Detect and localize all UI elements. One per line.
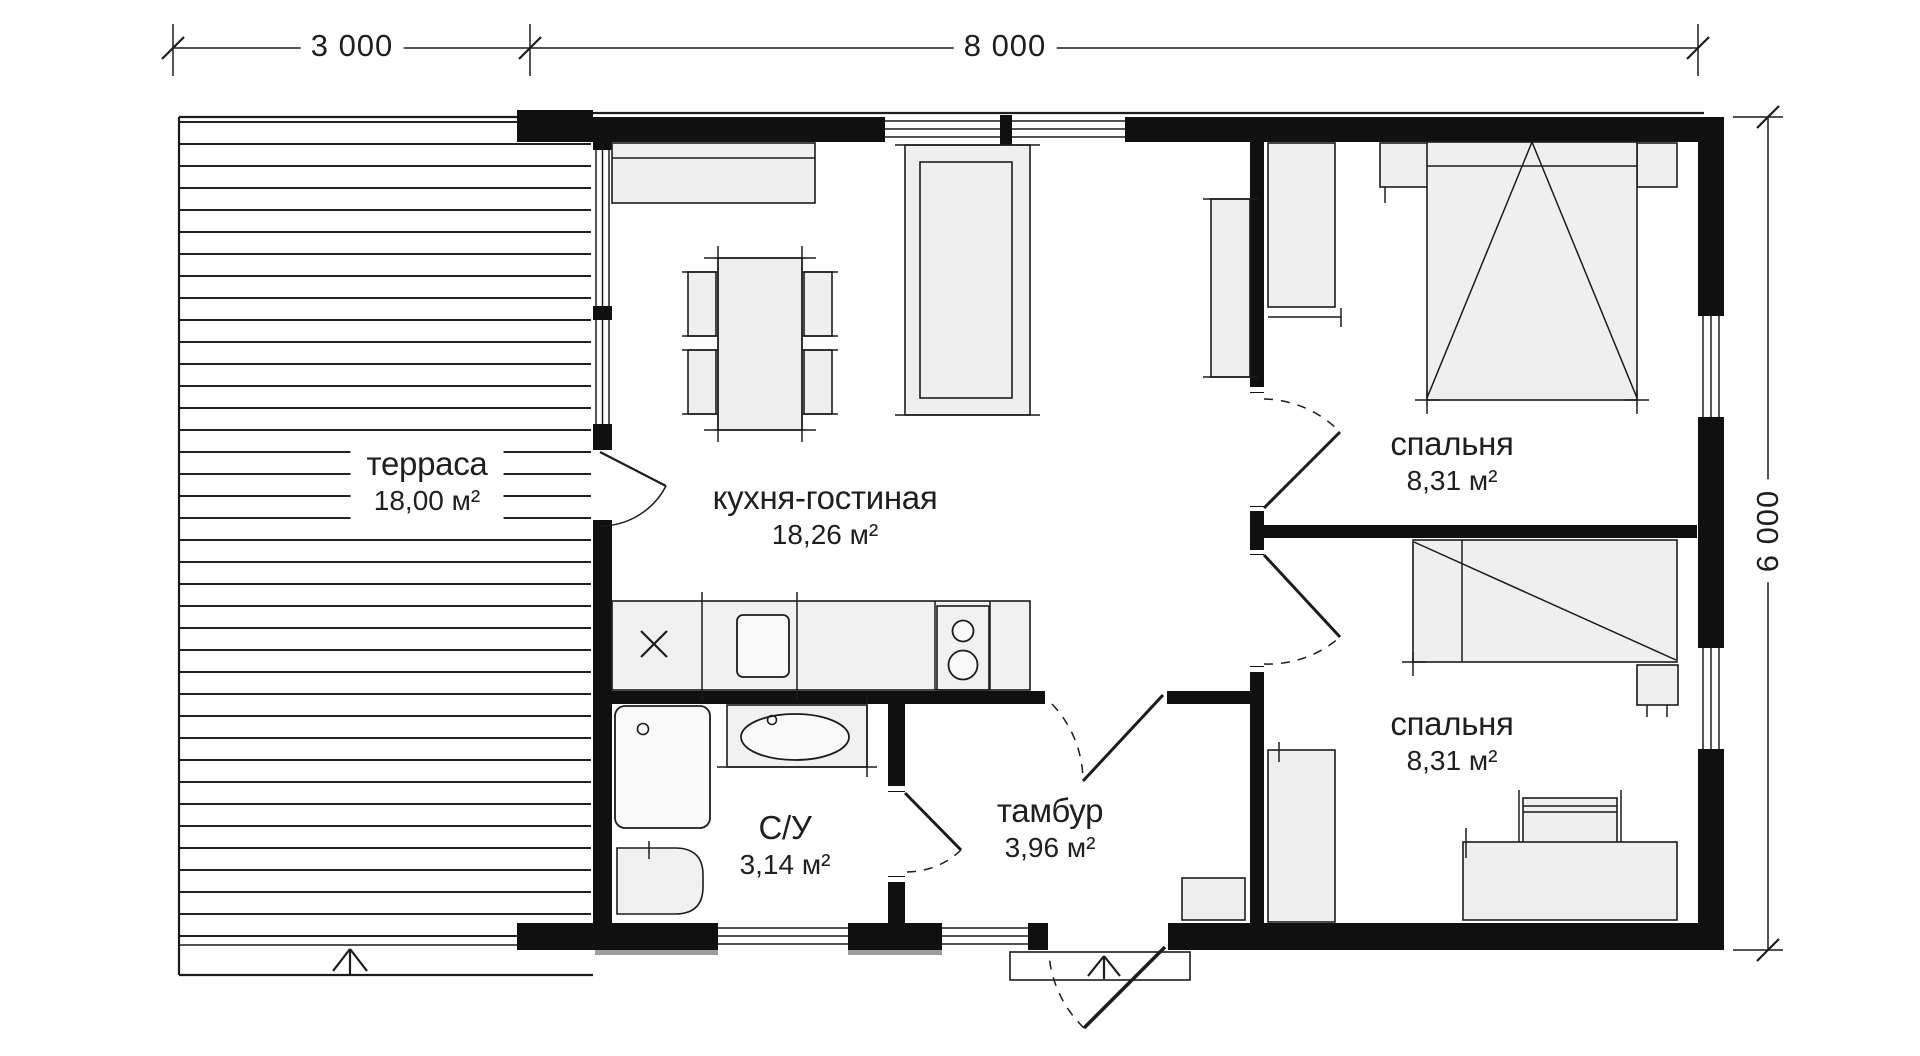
room-label-kitchen-living: кухня-гостиная 18,26 м² — [713, 481, 938, 549]
terrace-outline — [179, 117, 593, 975]
bedroom-top-furniture — [1268, 142, 1677, 414]
floor-plan: 3 000 8 000 6 000 терраса 18,00 м² кухня… — [0, 0, 1920, 1056]
washbasin-icon — [717, 696, 877, 777]
kitchen-vestibule-door-icon — [1052, 695, 1163, 781]
dining-table-icon — [682, 246, 838, 442]
dimension-right: 6 000 — [1748, 480, 1788, 583]
bathroom-fixtures — [615, 696, 877, 914]
desk-icon — [1463, 828, 1677, 920]
wardrobe-icon — [1268, 742, 1335, 922]
room-area: 8,31 м² — [1407, 747, 1498, 775]
room-label-vestibule: тамбур 3,96 м² — [997, 794, 1103, 862]
room-name: тамбур — [997, 794, 1103, 827]
nightstand-icon — [1637, 665, 1678, 717]
bedroom-top-door-icon — [1264, 399, 1340, 508]
room-area: 3,96 м² — [1005, 834, 1096, 862]
room-label-bedroom-top: спальня 8,31 м² — [1390, 427, 1513, 495]
room-area: 3,14 м² — [740, 851, 831, 879]
terrace-entry-arrow-icon — [333, 949, 367, 974]
room-name: спальня — [1390, 707, 1513, 740]
wall-shelf-icon — [1203, 199, 1258, 377]
kitchen-sink-icon — [737, 615, 789, 677]
room-name: С/У — [758, 811, 811, 844]
sofa-icon — [612, 143, 815, 203]
dimension-top-right: 8 000 — [954, 26, 1057, 66]
porch-entry-arrow-icon — [1088, 956, 1120, 979]
room-label-bathroom: С/У 3,14 м² — [740, 811, 831, 879]
tv-unit-icon — [895, 145, 1040, 415]
bed-icon — [1415, 142, 1649, 414]
dimension-top-left: 3 000 — [301, 26, 404, 66]
washing-machine-icon — [617, 841, 703, 914]
vestibule-closet-icon — [1182, 878, 1245, 920]
plan-drawing — [0, 0, 1920, 1056]
room-name: кухня-гостиная — [713, 481, 938, 514]
bathroom-door-icon — [905, 793, 961, 872]
kitchen-counter — [612, 592, 1030, 699]
shower-tray-icon — [615, 706, 710, 828]
shelf-icon — [1380, 143, 1430, 203]
porch — [1010, 952, 1190, 980]
room-label-bedroom-bottom: спальня 8,31 м² — [1390, 707, 1513, 775]
room-area: 8,31 м² — [1407, 467, 1498, 495]
room-label-terrace: терраса 18,00 м² — [351, 441, 504, 521]
room-name: терраса — [367, 447, 488, 480]
room-area: 18,26 м² — [772, 521, 878, 549]
nightstand-icon — [1637, 143, 1677, 187]
room-area: 18,00 м² — [374, 487, 480, 515]
bedroom-bottom-door-icon — [1264, 555, 1340, 664]
wardrobe-icon — [1268, 143, 1341, 327]
room-name: спальня — [1390, 427, 1513, 460]
living-room-furniture — [612, 143, 1258, 442]
bed-icon — [1402, 540, 1677, 676]
